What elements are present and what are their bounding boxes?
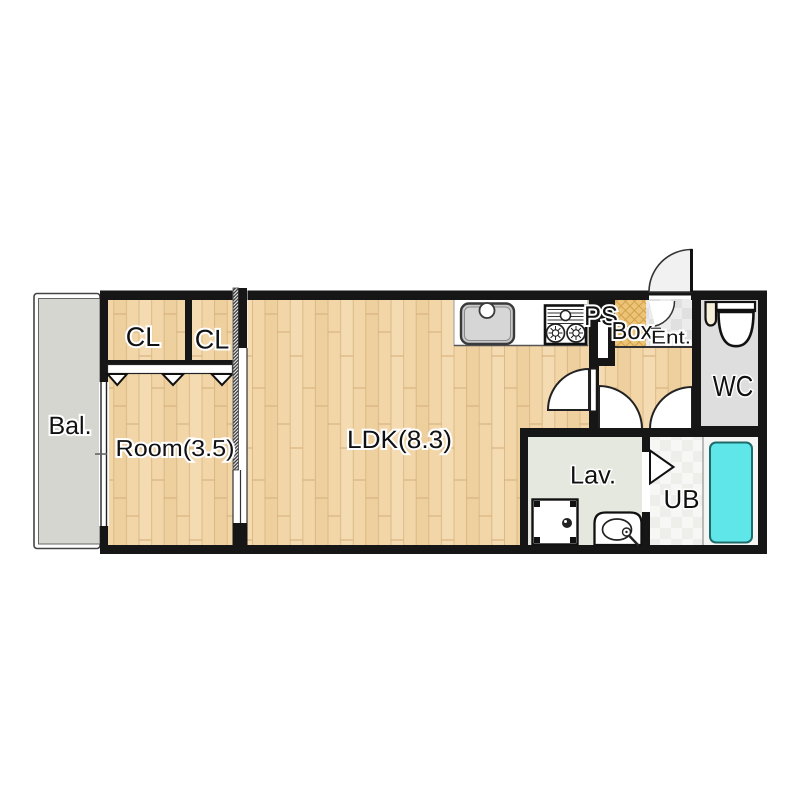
svg-text:Lav.: Lav. [570, 462, 616, 490]
svg-text:UB: UB [664, 484, 700, 514]
svg-text:LDK(8.3): LDK(8.3) [347, 426, 452, 454]
svg-text:Box: Box [612, 318, 653, 345]
svg-text:WC: WC [713, 371, 754, 403]
svg-text:CL: CL [126, 322, 161, 352]
svg-text:CL: CL [195, 325, 230, 355]
svg-text:Bal.: Bal. [48, 412, 91, 440]
svg-text:Ent.: Ent. [651, 327, 691, 348]
svg-text:Room(3.5): Room(3.5) [116, 435, 235, 461]
